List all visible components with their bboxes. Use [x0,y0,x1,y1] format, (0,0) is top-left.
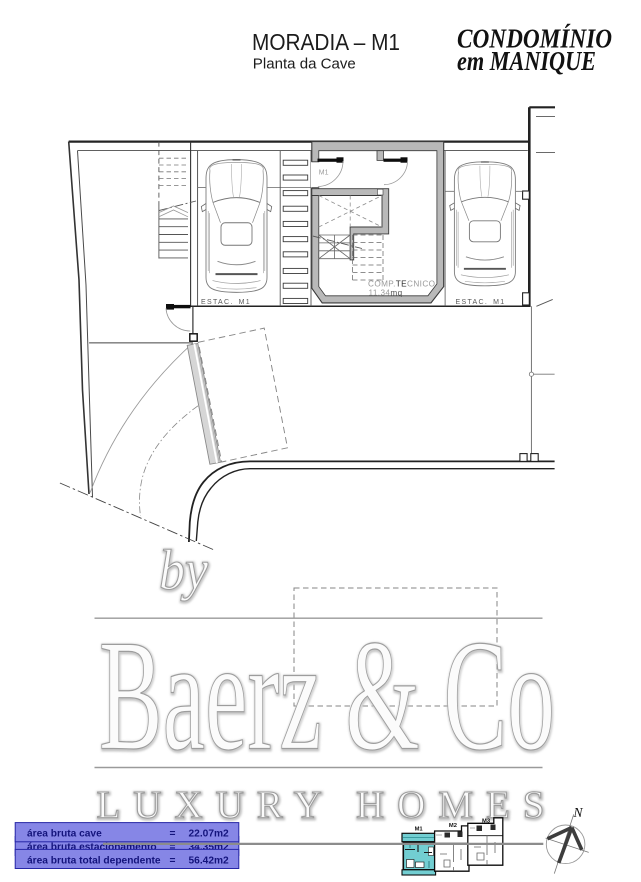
svg-text:MORADIA – M1: MORADIA – M1 [252,29,400,55]
svg-text:COMP.TECNICO: COMP.TECNICO [368,280,435,289]
svg-text:M2: M2 [449,823,457,829]
svg-text:Planta da Cave: Planta da Cave [253,57,356,73]
svg-text:N: N [573,805,584,820]
svg-text:=: = [170,855,176,866]
svg-text:=: = [170,828,176,839]
svg-text:22.07m2: 22.07m2 [189,828,230,839]
svg-text:M1: M1 [415,827,424,833]
svg-text:ESTAC.M1: ESTAC.M1 [456,299,506,306]
svg-text:Baerz & Co: Baerz & Co [99,608,555,784]
svg-text:M1: M1 [319,170,329,177]
svg-text:56.42m2: 56.42m2 [189,855,230,866]
svg-text:ESTAC.M1: ESTAC.M1 [201,299,251,306]
svg-text:área bruta total dependente: área bruta total dependente [27,855,161,866]
svg-text:by: by [159,539,209,602]
svg-text:em MANIQUE: em MANIQUE [457,46,596,76]
svg-text:11.34mq: 11.34mq [369,289,403,298]
svg-text:área bruta cave: área bruta cave [27,828,102,839]
